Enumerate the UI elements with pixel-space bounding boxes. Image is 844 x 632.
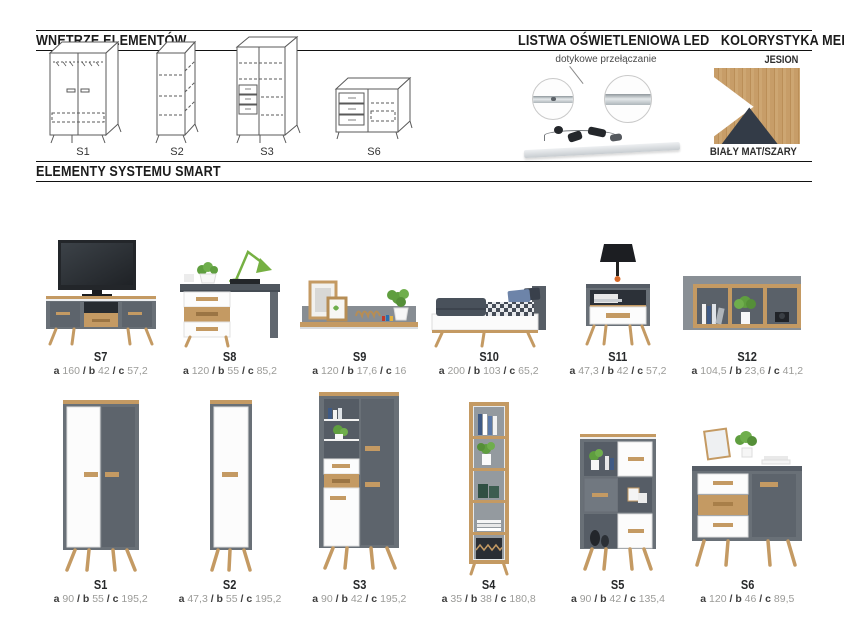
led-strip-photo bbox=[524, 124, 684, 156]
product-code: S3 bbox=[353, 579, 366, 592]
led-zoom-circle-right bbox=[604, 75, 652, 123]
product-card-s3: S3 a 90 / b 42 / c 195,2 bbox=[295, 384, 424, 605]
product-dimensions: a 160 / b 42 / c 57,2 bbox=[54, 365, 148, 377]
product-dimensions: a 104,5 / b 23,6 / c 41,2 bbox=[692, 365, 804, 377]
product-card-s6: S6 a 120 / b 46 / c 89,5 bbox=[683, 384, 812, 605]
product-code: S2 bbox=[223, 579, 236, 592]
touch-sensor-dot bbox=[551, 97, 556, 101]
product-dimensions: a 47,3 / b 42 / c 57,2 bbox=[569, 365, 666, 377]
chest-shelf-illustration bbox=[572, 426, 664, 576]
led-caption: dotykowe przełączanie bbox=[518, 54, 694, 65]
product-card-s12: S12 a 104,5 / b 23,6 / c 41,2 bbox=[683, 226, 812, 377]
product-code: S12 bbox=[738, 351, 758, 364]
interior-label: S1 bbox=[76, 146, 89, 158]
product-row-2: S1 a 90 / b 55 / c 195,2 S2 a 47,3 / b 5… bbox=[36, 384, 812, 605]
color-label-bialy-szary: BIAŁY MAT/SZARY bbox=[710, 146, 797, 158]
product-card-s4: S4 a 35 / b 38 / c 180,8 bbox=[424, 384, 553, 605]
led-plug bbox=[554, 126, 563, 134]
cabinet-interior-drawing bbox=[150, 37, 204, 145]
wall-cube-shelf-illustration bbox=[681, 270, 813, 336]
product-code: S8 bbox=[223, 351, 236, 364]
product-code: S10 bbox=[479, 351, 499, 364]
product-dimensions: a 90 / b 42 / c 195,2 bbox=[312, 593, 406, 605]
interior-label: S6 bbox=[367, 146, 380, 158]
product-card-s2: S2 a 47,3 / b 55 / c 195,2 bbox=[165, 384, 294, 605]
wardrobe-illustration bbox=[51, 390, 151, 576]
product-dimensions: a 90 / b 42 / c 135,4 bbox=[571, 593, 665, 605]
product-row-1: S7 a 160 / b 42 / c 57,2 bbox=[36, 226, 812, 377]
led-strip-closeup bbox=[605, 94, 651, 105]
colors-heading: KOLORYSTYKA MEBLI bbox=[721, 32, 844, 49]
led-connector bbox=[610, 133, 623, 142]
interior-item-s6: S6 bbox=[330, 73, 418, 158]
product-card-s1: S1 a 90 / b 55 / c 195,2 bbox=[36, 384, 165, 605]
led-pointer-line bbox=[569, 66, 583, 84]
product-card-s10: S10 a 200 / b 103 / c 65,2 bbox=[424, 226, 553, 377]
tv-stand-illustration bbox=[40, 236, 162, 348]
nightstand-illustration bbox=[574, 238, 662, 348]
led-zoom-circle-left bbox=[532, 78, 574, 120]
product-code: S6 bbox=[741, 579, 754, 592]
interior-item-s2: S2 bbox=[150, 37, 204, 158]
product-code: S4 bbox=[482, 579, 495, 592]
product-code: S7 bbox=[94, 351, 107, 364]
interior-label: S2 bbox=[170, 146, 183, 158]
product-dimensions: a 35 / b 38 / c 180,8 bbox=[442, 593, 536, 605]
product-code: S9 bbox=[353, 351, 366, 364]
product-card-s11: S11 a 47,3 / b 42 / c 57,2 bbox=[553, 226, 682, 377]
product-dimensions: a 47,3 / b 55 / c 195,2 bbox=[179, 593, 282, 605]
product-code: S1 bbox=[94, 579, 107, 592]
product-dimensions: a 200 / b 103 / c 65,2 bbox=[439, 365, 539, 377]
led-heading-wrap: LISTWA OŚWIETLENIOWA LED bbox=[518, 32, 694, 49]
product-card-s7: S7 a 160 / b 42 / c 57,2 bbox=[36, 226, 165, 377]
product-card-s8: S8 a 120 / b 55 / c 85,2 bbox=[165, 226, 294, 377]
product-dimensions: a 120 / b 46 / c 89,5 bbox=[700, 593, 794, 605]
led-heading: LISTWA OŚWIETLENIOWA LED bbox=[518, 32, 709, 49]
interior-label: S3 bbox=[260, 146, 273, 158]
colors-heading-wrap: KOLORYSTYKA MEBLI bbox=[694, 32, 812, 49]
bed-illustration bbox=[424, 268, 554, 348]
system-heading-band: ELEMENTY SYSTEMU SMART bbox=[36, 161, 812, 182]
wardrobe-interior-drawing bbox=[42, 37, 124, 145]
interiors-drawings: S1 bbox=[36, 52, 518, 158]
sideboard-illustration bbox=[684, 418, 810, 576]
system-heading: ELEMENTY SYSTEMU SMART bbox=[36, 163, 221, 180]
narrow-wardrobe-illustration bbox=[198, 390, 262, 576]
wall-shelf-illustration bbox=[294, 264, 424, 332]
interior-item-s3: S3 bbox=[230, 33, 304, 158]
product-dimensions: a 90 / b 55 / c 195,2 bbox=[54, 593, 148, 605]
led-light-bar bbox=[524, 142, 680, 158]
product-code: S11 bbox=[608, 351, 627, 364]
desk-illustration bbox=[172, 236, 288, 348]
led-section: dotykowe przełączanie bbox=[518, 52, 694, 158]
tall-cabinet-illustration bbox=[309, 384, 409, 576]
product-dimensions: a 120 / b 17,6 / c 16 bbox=[312, 365, 406, 377]
top-section: S1 bbox=[36, 52, 812, 158]
product-card-s5: S5 a 90 / b 42 / c 135,4 bbox=[553, 384, 682, 605]
sideboard-interior-drawing bbox=[330, 73, 418, 145]
narrow-shelf-illustration bbox=[461, 398, 517, 576]
catalog-page: WNĘTRZE ELEMENTÓW LISTWA OŚWIETLENIOWA L… bbox=[0, 0, 844, 632]
interior-item-s1: S1 bbox=[42, 37, 124, 158]
colors-section: JESION BIAŁY MAT/SZARY bbox=[694, 52, 812, 158]
product-card-s9: S9 a 120 / b 17,6 / c 16 bbox=[295, 226, 424, 377]
bookcase-interior-drawing bbox=[230, 33, 304, 145]
product-dimensions: a 120 / b 55 / c 85,2 bbox=[183, 365, 277, 377]
product-code: S5 bbox=[611, 579, 624, 592]
color-swatch bbox=[714, 68, 800, 144]
color-label-jesion: JESION bbox=[764, 54, 798, 66]
